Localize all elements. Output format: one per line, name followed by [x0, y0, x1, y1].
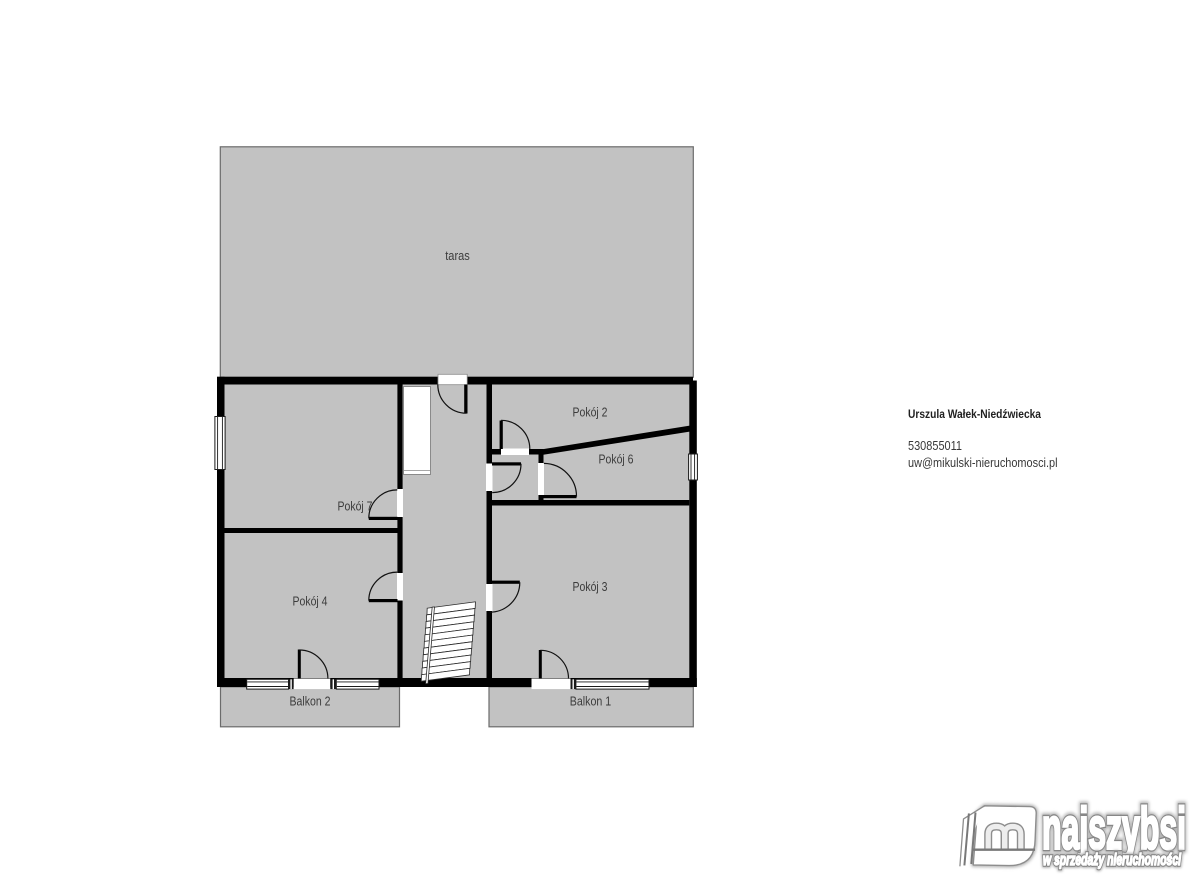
- svg-text:Urszula Wałek-Niedźwiecka: Urszula Wałek-Niedźwiecka: [908, 409, 1042, 421]
- svg-text:Balkon 1: Balkon 1: [570, 695, 612, 709]
- svg-text:taras: taras: [445, 249, 470, 263]
- svg-text:uw@mikulski-nieruchomosci.pl: uw@mikulski-nieruchomosci.pl: [908, 456, 1058, 470]
- svg-text:Pokój 2: Pokój 2: [573, 405, 608, 419]
- svg-text:530855011: 530855011: [908, 439, 962, 453]
- svg-text:Pokój 7: Pokój 7: [338, 500, 373, 514]
- svg-text:Pokój 3: Pokój 3: [573, 580, 608, 594]
- svg-text:Pokój 4: Pokój 4: [293, 595, 328, 609]
- svg-text:w sprzedaży nieruchomości: w sprzedaży nieruchomości: [1043, 851, 1181, 869]
- svg-text:Pokój 6: Pokój 6: [599, 452, 634, 466]
- svg-text:Balkon 2: Balkon 2: [290, 695, 331, 709]
